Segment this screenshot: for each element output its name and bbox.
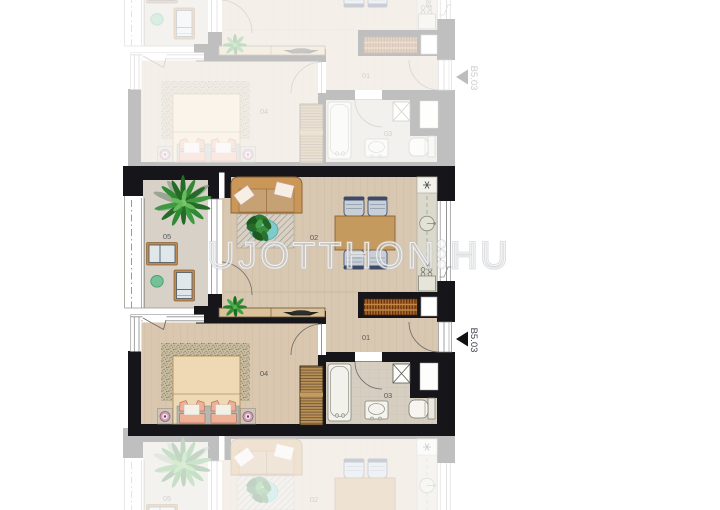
svg-text:HU: HU: [451, 235, 511, 276]
svg-text:UJOTTHON: UJOTTHON: [208, 235, 437, 276]
